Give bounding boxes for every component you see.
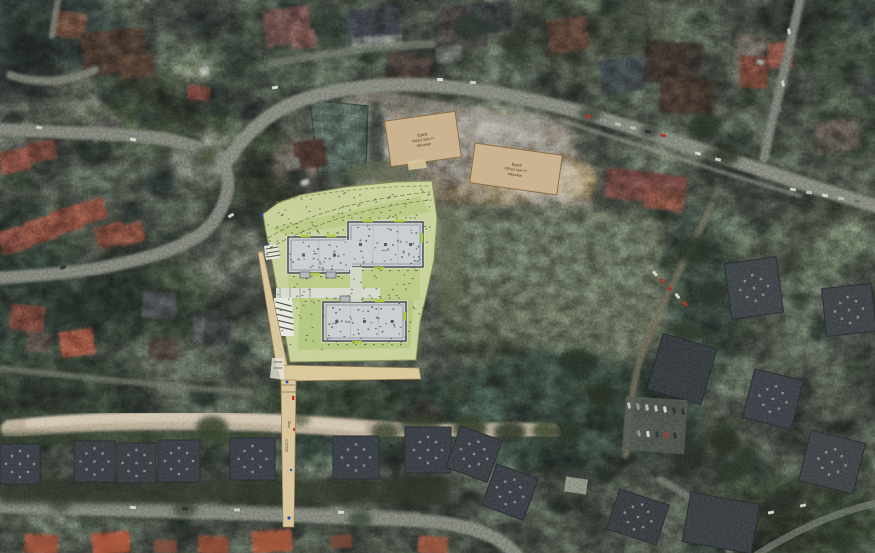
svg-text:ODCS72: ODCS72: [285, 439, 289, 452]
svg-text:drogi: drogi: [287, 421, 291, 428]
